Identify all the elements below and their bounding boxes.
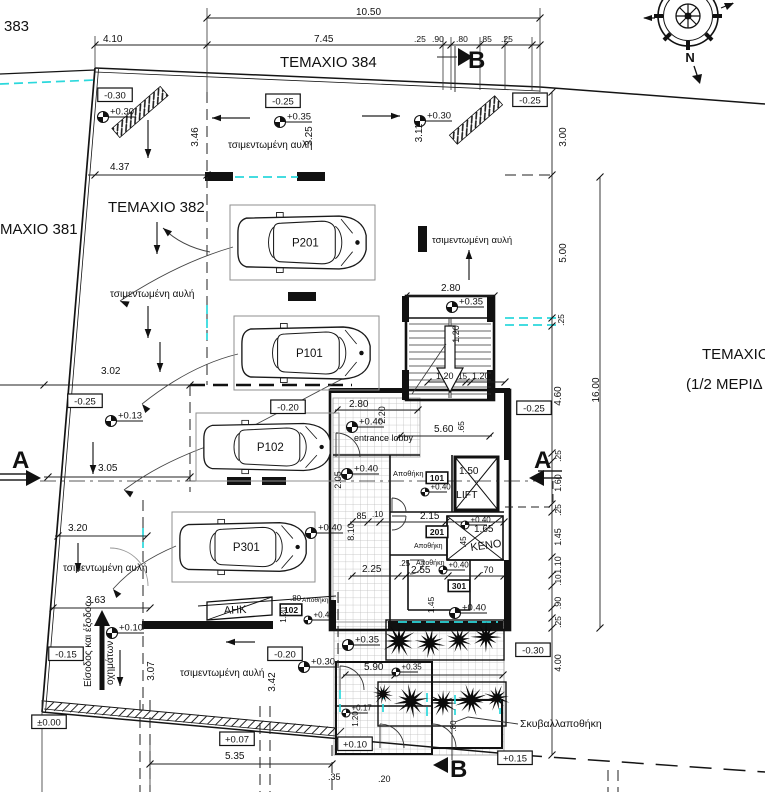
spot-level-label: +0.35 [402, 663, 423, 672]
section-letter-a: A [12, 447, 29, 474]
dim: .25 [501, 34, 513, 44]
sidewalk-hatch [320, 727, 328, 735]
spot-level-quadrant [421, 492, 425, 496]
dim: 2.80 [441, 283, 461, 294]
direction-arrowhead [117, 677, 124, 686]
dim: .85 [480, 34, 492, 44]
spot-level-label: +0.40 [314, 611, 335, 620]
sidewalk-hatch [54, 703, 62, 711]
unit-tag-label: 201 [430, 527, 444, 537]
dim: .45 [459, 536, 468, 548]
dim: .65 [456, 421, 466, 433]
direction-arrowhead [154, 245, 161, 254]
direction-arrowhead [157, 363, 164, 372]
spot-level-quadrant [112, 628, 118, 634]
level-box-label: -0.25 [272, 97, 294, 108]
sidewalk-hatch [167, 713, 175, 721]
entry-exit-label: Είσοδος και έξοδος [82, 602, 94, 687]
dim: 1.20 [451, 325, 461, 343]
sidewalk-hatch [127, 709, 135, 717]
parking-label: P102 [257, 442, 284, 454]
dim: 2.80 [349, 399, 369, 410]
parcel-381: ΜΑΧΙΟ 381 [0, 221, 78, 238]
level-box-label: +0.07 [225, 735, 249, 746]
parking-label: P301 [233, 542, 260, 554]
level-box-label: -0.25 [523, 404, 545, 415]
dim: 4.60 [553, 386, 564, 406]
level-box-label: -0.25 [519, 96, 541, 107]
level-box-label: +0.15 [503, 754, 527, 765]
spot-level-quadrant [452, 302, 458, 308]
spot-level-quadrant [304, 662, 310, 668]
sidewalk-hatch [191, 715, 199, 723]
dim: 4.00 [553, 654, 563, 672]
dim: 4.10 [103, 34, 123, 45]
dim: 4.37 [110, 162, 130, 173]
dim: 1.65 [474, 524, 494, 535]
direction-arrowhead [145, 329, 152, 338]
dim: .20 [378, 774, 391, 784]
dim: 1.50 [459, 466, 479, 477]
utility-dash-line [0, 80, 95, 84]
dim: .25 [553, 450, 563, 462]
dim: 3.05 [98, 463, 118, 474]
dim: 1.20 [436, 371, 454, 381]
section-letter-a: A [534, 447, 551, 474]
spot-level-quadrant [275, 122, 281, 128]
spot-level-quadrant [103, 112, 109, 118]
room-void: ΚΕΝΟ [470, 538, 503, 554]
parcel-right: ΤΕΜΑΧΙΟ 3 [702, 346, 765, 363]
dim: 2.05 [333, 471, 343, 489]
parcel-right-share: (1/2 ΜΕΡΙΔ [686, 376, 763, 393]
sidewalk-hatch [110, 708, 118, 716]
spot-level-quadrant [280, 117, 286, 123]
dim: .85 [354, 511, 367, 521]
dim: 3.63 [86, 595, 106, 606]
yard-label: τσιμεντωμένη αυλή [432, 235, 512, 246]
direction-arrowhead [90, 465, 97, 474]
dim: 5.60 [434, 424, 454, 435]
unit-tag-label: 301 [452, 581, 466, 591]
direction-arrowhead [145, 149, 152, 158]
dim: 3.07 [146, 661, 157, 681]
room-storage: Αποθήκη [302, 597, 329, 604]
spot-level-label: +0.17 [352, 704, 373, 713]
spot-level-quadrant [450, 613, 456, 619]
dim: 3.02 [101, 366, 121, 377]
spot-level-quadrant [106, 421, 112, 427]
spot-level-label: +0.30 [427, 111, 451, 122]
spot-level-quadrant [461, 525, 465, 529]
sidewalk-hatch [143, 711, 151, 719]
dim: .25 [399, 559, 411, 568]
sidewalk-hatch [272, 722, 280, 730]
dim: 10.50 [356, 7, 381, 18]
spot-level-quadrant [111, 416, 117, 422]
direction-arrowhead [212, 115, 221, 122]
section-letter-b: B [468, 47, 485, 74]
parcel-384: ΤΕΜΑΧΙΟ 384 [280, 54, 377, 71]
room-ahk: ΑΗΚ [224, 604, 248, 617]
dim: 2.25 [362, 564, 382, 575]
dim: 16.00 [591, 377, 602, 402]
sidewalk-hatch [62, 703, 70, 711]
room-garbage-store: Σκυβαλλαποθήκη [520, 718, 602, 730]
dim: 2.20 [377, 406, 387, 424]
dim: 5.90 [364, 662, 384, 673]
spot-level-quadrant [299, 667, 305, 673]
dim: .25 [414, 34, 426, 44]
spot-level-quadrant [447, 307, 453, 313]
spot-level-quadrant [420, 116, 426, 122]
section-letter-b: B [450, 756, 467, 783]
dim: 1.20 [351, 711, 360, 727]
dim: 1.20 [472, 371, 490, 381]
spot-level-label: +0.30 [110, 107, 134, 118]
spot-level-label: +0.30 [311, 657, 335, 668]
spot-level-label: +0.40 [449, 561, 470, 570]
sidewalk-hatch [46, 702, 54, 710]
dim: .35 [328, 772, 341, 782]
dim: 1.10 [553, 556, 563, 574]
dim: .90 [432, 34, 444, 44]
parcel-383: 383 [4, 18, 29, 35]
direction-arrowhead [391, 113, 400, 120]
spot-level-label: +0.40 [354, 464, 378, 475]
dim: .90 [553, 597, 563, 610]
sidewalk-hatch [312, 726, 320, 734]
parcel-382: ΤΕΜΑΧΙΟ 382 [108, 199, 205, 216]
spot-level-label: +0.40 [318, 523, 342, 534]
direction-arrowhead [466, 250, 473, 259]
sidewalk-hatch [296, 724, 304, 732]
dim: 2.55 [411, 565, 431, 576]
compass-n-label: N [685, 50, 694, 65]
dim: 5.35 [225, 751, 245, 762]
sidewalk-hatch [280, 723, 288, 731]
direction-arrowhead [226, 639, 235, 646]
level-box-label: -0.25 [74, 397, 96, 408]
room-storage: Αποθήκη [393, 469, 424, 478]
sidewalk-hatch [135, 710, 143, 718]
sidewalk-hatch [239, 719, 247, 727]
sidewalk-hatch [247, 720, 255, 728]
entry-arrowhead [94, 610, 110, 626]
spot-level-quadrant [304, 620, 308, 624]
level-box-label: ±0.00 [37, 718, 61, 729]
unit-tag-label: 101 [430, 473, 444, 483]
sidewalk-hatch [175, 714, 183, 722]
entry-exit-label: οχημάτων [104, 641, 116, 685]
sidewalk-hatch [151, 711, 159, 719]
dim: 3.00 [558, 127, 569, 147]
room-storage: Αποθήκη [414, 543, 443, 550]
dim: .10 [554, 574, 563, 586]
yard-label: τσιμεντωμένη αυλή [180, 667, 264, 679]
spot-level-quadrant [439, 570, 443, 574]
level-box-label: +0.10 [343, 740, 367, 751]
dim: .25 [553, 616, 563, 628]
dim: .15 [456, 372, 468, 381]
sidewalk-hatch [223, 718, 231, 726]
sidewalk-hatch [255, 721, 263, 729]
dim: 3.46 [190, 127, 201, 147]
floor-plan-drawing: N P201P101P102P301+0.30+0.35+0.30+0.13+0… [0, 0, 765, 792]
spot-level-label: +0.40 [462, 603, 486, 614]
level-box-label: -0.20 [277, 403, 299, 414]
dim: 8.10 [346, 523, 356, 541]
spot-level-label: +0.35 [287, 112, 311, 123]
dim: 2.15 [420, 511, 440, 522]
floor-plan-page: N P201P101P102P301+0.30+0.35+0.30+0.13+0… [0, 0, 765, 792]
dim: .25 [556, 314, 566, 326]
level-box-label: -0.30 [522, 646, 544, 657]
sidewalk-hatch [78, 705, 86, 713]
dim: .80 [290, 594, 302, 603]
sidewalk-hatch [199, 716, 207, 724]
spot-level-quadrant [455, 608, 461, 614]
sidewalk-hatch [288, 724, 296, 732]
spot-level-quadrant [107, 633, 113, 639]
spot-level-quadrant [425, 488, 429, 492]
dim: 3.11 [414, 123, 425, 142]
dim: .25 [553, 504, 563, 516]
dim: .10 [372, 510, 384, 519]
spot-level-quadrant [311, 528, 317, 534]
dim: .80 [449, 720, 458, 732]
dim: .70 [481, 565, 494, 575]
parking-label: P101 [296, 348, 323, 360]
spot-level-label: +0.35 [459, 297, 483, 308]
yard-label: τσιμεντωμένη αυλή [110, 288, 194, 300]
sidewalk-hatch [94, 706, 102, 714]
spot-level-label: +0.10 [119, 623, 143, 634]
sidewalk-hatch [207, 716, 215, 724]
spot-level-label: +0.35 [355, 635, 379, 646]
dim: .80 [456, 34, 468, 44]
level-box-label: -0.15 [55, 650, 77, 661]
maneuver-curve [124, 449, 200, 490]
sidewalk-hatch [159, 712, 167, 720]
sidewalk-hatch [231, 719, 239, 727]
sidewalk-hatch [215, 717, 223, 725]
sidewalk-hatch [119, 709, 127, 717]
dim: 7.45 [314, 34, 334, 45]
maneuver-arrowhead [122, 487, 133, 497]
parking-label: P201 [292, 238, 319, 250]
dim: 1.45 [553, 528, 563, 546]
sidewalk-hatch [70, 704, 78, 712]
dim: 1.60 [553, 474, 563, 492]
dim: 3.42 [267, 672, 278, 692]
north-compass-icon: N [643, 0, 734, 84]
sidewalk-hatch [304, 725, 312, 733]
sidewalk-hatch [102, 707, 110, 715]
spot-level-quadrant [308, 616, 312, 620]
level-box-label: -0.30 [104, 91, 126, 102]
yard-label: τσιμεντωμένη αυλή [228, 139, 312, 151]
dim: 3.20 [68, 523, 88, 534]
dim: 1.20 [279, 607, 288, 623]
level-box-label: -0.20 [274, 650, 296, 661]
room-entrance-lobby: entrance lobby [354, 433, 414, 443]
maneuver-arrowhead [110, 587, 121, 598]
sidewalk-hatch [86, 706, 94, 714]
dim: 3.25 [304, 126, 315, 146]
dim: 5.00 [558, 243, 569, 263]
dim: 1.45 [426, 596, 436, 613]
room-lift: LIFT [456, 489, 478, 501]
sidewalk-hatch [183, 714, 191, 722]
spot-level-label: +0.13 [118, 411, 142, 422]
spot-level-quadrant [306, 533, 312, 539]
maneuver-curve [142, 354, 238, 404]
spot-level-quadrant [98, 117, 104, 123]
yard-label: τσιμεντωμένη αυλή [63, 562, 147, 574]
